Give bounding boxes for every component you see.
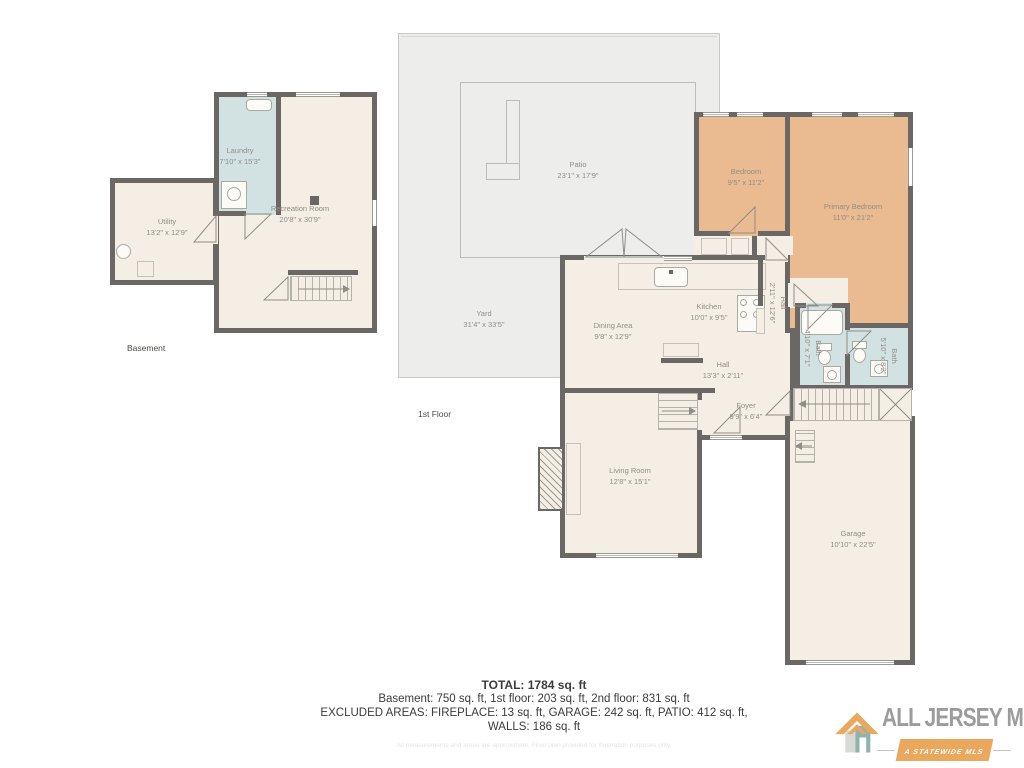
room-label-garage: Garage 10'10" x 22'5" (830, 529, 875, 551)
room-name: Recreation Room (271, 204, 329, 215)
room-label-living: Living Room 12'8" x 15'1" (609, 466, 651, 488)
laundry-sink (246, 99, 272, 111)
garage-steps (795, 430, 815, 463)
primary-window-2 (858, 112, 894, 117)
bedroom-window-2 (737, 112, 763, 117)
room-dims: 7'10" x 15'3" (219, 157, 260, 168)
bath-main-door-gap (806, 303, 832, 308)
wall-areas: WALLS: 186 sq. ft (184, 720, 884, 734)
fireplace-hearth (566, 443, 581, 515)
hall-stairs-gap (763, 388, 790, 393)
room-label-dining: Dining Area 9'8" x 12'9" (594, 321, 633, 343)
room-name: Hall (777, 283, 788, 324)
room-dims: 9'5" x 11'2" (728, 178, 764, 189)
basement-stairs-wall (288, 270, 358, 275)
burner-1 (740, 299, 747, 306)
room-name: Living Room (609, 466, 651, 477)
utility-door-gap (213, 216, 218, 244)
kitchen-cabinet (756, 308, 765, 334)
banner-ribbon: A STATEWIDE MLS (895, 739, 992, 761)
room-dims: 13'2" x 12'9" (146, 228, 187, 239)
living-fireplace (538, 447, 564, 511)
room-dims: 5'10" x 8'2" (877, 338, 888, 375)
floor-plan-page: { "basement": { "floor_label": "Basement… (0, 0, 1024, 768)
primary-window-right (908, 148, 913, 186)
kitchen-right-wall (758, 258, 763, 306)
room-label-bath-second: Bath 5'10" x 8'2" (877, 338, 899, 375)
corridor-wall-stub (752, 236, 757, 260)
room-dims: 13'3" x 2'11" (703, 371, 744, 382)
room-label-utility: Utility 13'2" x 12'9" (146, 217, 187, 239)
primary-window-1 (812, 112, 842, 117)
area-summary: TOTAL: 1784 sq. ft Basement: 750 sq. ft,… (184, 678, 884, 734)
room-label-hall-vertical: Hall 2'11" x 12'6" (766, 283, 788, 324)
patio-fireplace-base (486, 163, 520, 180)
kitchen-window (664, 256, 692, 261)
room-name: Yard (463, 309, 504, 320)
room-label-foyer: Foyer 9'9" x 6'4" (730, 401, 763, 423)
corridor-closet-1 (701, 238, 727, 255)
yard-inner-line (401, 36, 717, 37)
bedroom-window-1 (703, 112, 729, 117)
room-label-bath-main: Bath 4'10" x 7'1" (801, 330, 823, 367)
room-dims: 20'8" x 30'9" (271, 215, 329, 226)
logo-banner: A STATEWIDE MLS (870, 739, 1018, 761)
room-name: Bath (812, 330, 823, 367)
logo-subtitle: A STATEWIDE MLS (903, 749, 983, 756)
corridor-closet-2 (731, 238, 749, 255)
hall-vertical-opening (765, 253, 788, 262)
living-stairs (658, 393, 698, 430)
floor-areas: Basement: 750 sq. ft, 1st floor: 203 sq.… (184, 692, 884, 706)
room-dims: 9'9" x 6'4" (730, 412, 763, 423)
foyer-stairs (793, 388, 879, 421)
banner-line-right (993, 750, 1011, 751)
bath-second-door-gap (845, 330, 850, 354)
room-dims: 10'10" x 22'5" (830, 540, 875, 551)
toilet-second-bowl (853, 348, 866, 363)
watermark-text: All measurements and areas are approxima… (184, 742, 884, 749)
basement-floor-label: Basement (127, 343, 165, 353)
kitchen-counter (618, 263, 766, 290)
laundry-window (247, 92, 267, 97)
burner-3 (740, 311, 747, 318)
half-wall-stub (661, 358, 703, 363)
room-name: Garage (830, 529, 875, 540)
utility-equipment-box (137, 261, 154, 277)
excluded-areas: EXCLUDED AREAS: FIREPLACE: 13 sq. ft, GA… (184, 706, 884, 720)
room-name: Primary Bedroom (824, 202, 882, 213)
room-name: Foyer (730, 401, 763, 412)
all-jersey-mls-logo: ALL JERSEY MLS A STATEWIDE MLS (830, 698, 1024, 762)
dining-patio-door-gap (584, 256, 664, 260)
living-window (596, 553, 678, 558)
front-door-gap (710, 435, 742, 440)
room-name: Kitchen (691, 302, 728, 313)
room-dims: 2'11" x 12'6" (766, 283, 777, 324)
primary-door-gap (788, 283, 793, 307)
first-floor-label: 1st Floor (418, 409, 451, 419)
garage-door (806, 660, 894, 665)
utility-meter (116, 244, 131, 259)
recreation-window-right (372, 200, 377, 226)
room-dims: 9'8" x 12'9" (594, 332, 633, 343)
room-name: Bath (888, 338, 899, 375)
laundry-bottom-wall (214, 211, 246, 216)
bedroom-door-gap (730, 231, 758, 236)
room-dims: 31'4" x 33'5" (463, 320, 504, 331)
laundry-rec-wall (276, 97, 281, 215)
room-dims: 10'0" x 9'5" (691, 313, 728, 324)
room-name: Hall (703, 360, 744, 371)
recreation-window-top (296, 92, 340, 97)
room-name: Bedroom (728, 167, 764, 178)
room-label-hall: Hall 13'3" x 2'11" (703, 360, 744, 382)
room-name: Utility (146, 217, 187, 228)
room-label-bedroom: Bedroom 9'5" x 11'2" (728, 167, 764, 189)
room-label-yard: Yard 31'4" x 33'5" (463, 309, 504, 331)
basement-stairs (290, 276, 352, 301)
room-name: Patio (557, 160, 598, 171)
room-name: Dining Area (594, 321, 633, 332)
room-dims: 11'0" x 21'2" (824, 213, 882, 224)
room-dims: 12'8" x 15'1" (609, 477, 651, 488)
room-label-patio: Patio 23'1" x 17'9" (557, 160, 598, 182)
stairs-closet (879, 388, 912, 421)
kitchen-faucet (669, 270, 673, 274)
sink-main (827, 370, 837, 380)
room-dims: 23'1" x 17'9" (557, 171, 598, 182)
washer-drum (227, 187, 241, 201)
room-label-kitchen: Kitchen 10'0" x 9'5" (691, 302, 728, 324)
logo-title: ALL JERSEY MLS (882, 702, 1024, 733)
room-label-laundry: Laundry 7'10" x 15'3" (219, 146, 260, 168)
room-label-recreation: Recreation Room 20'8" x 30'9" (271, 204, 329, 226)
banner-line-left (877, 750, 895, 751)
room-label-primary-bedroom: Primary Bedroom 11'0" x 21'2" (824, 202, 882, 224)
peninsula-counter (663, 343, 699, 357)
total-area: TOTAL: 1784 sq. ft (184, 678, 884, 692)
room-dims: 4'10" x 7'1" (801, 330, 812, 367)
room-name: Laundry (219, 146, 260, 157)
